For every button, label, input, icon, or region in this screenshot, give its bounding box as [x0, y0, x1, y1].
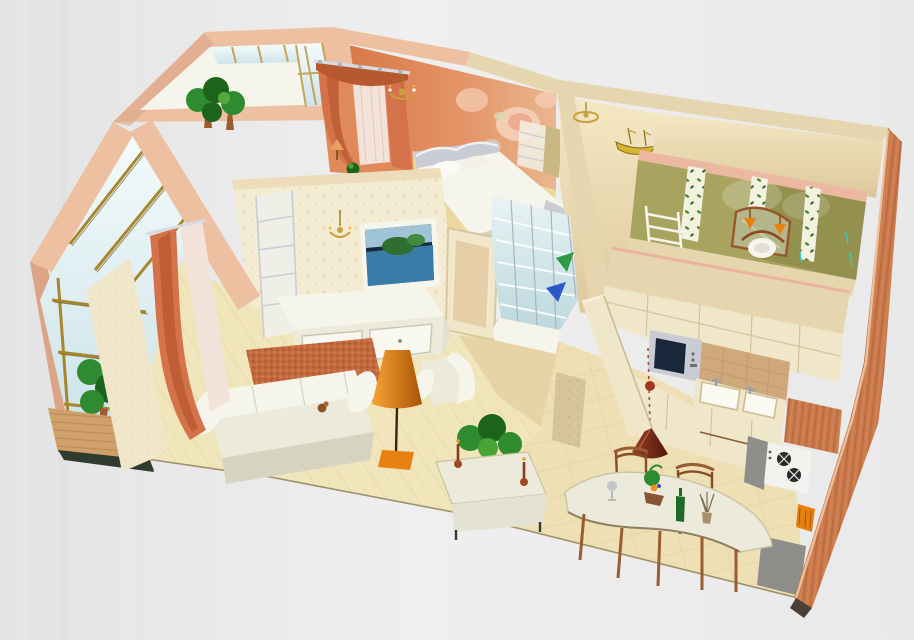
floor-lamp-base: [378, 450, 414, 470]
screenshot-canvas: Isometric cutaway 3D rendering of a furn…: [0, 0, 914, 640]
apartment-render: Isometric cutaway 3D rendering of a furn…: [0, 0, 914, 640]
wine-glass: [607, 481, 617, 491]
table-plant: [644, 470, 660, 486]
bedroom-wardrobe: [543, 126, 562, 178]
bedroom-window: [314, 60, 414, 178]
living-door: [446, 228, 498, 340]
green-bottle: [676, 496, 685, 522]
wall-tv: [360, 218, 440, 292]
